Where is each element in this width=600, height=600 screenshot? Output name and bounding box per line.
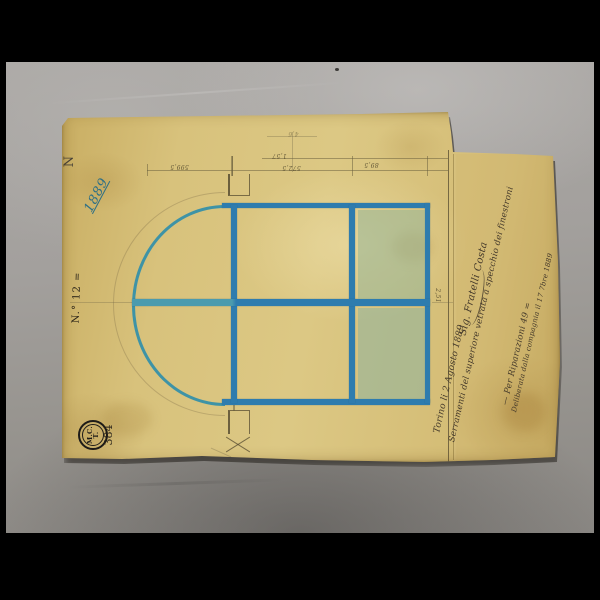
dim-label-small: 4,6 xyxy=(288,130,298,137)
frame-top-rail xyxy=(222,203,430,208)
sheet-number-label: N.° 12 = xyxy=(70,268,83,326)
backdrop-wrinkle xyxy=(66,478,286,489)
bottom-black-bar xyxy=(0,533,600,600)
year-note: 1889 xyxy=(81,175,112,215)
jamb-profile-bottom xyxy=(228,410,250,434)
dim-extension-line-right xyxy=(448,150,449,462)
glass-pane-upper xyxy=(358,210,425,299)
dim-label-overall: 1,57 xyxy=(272,152,287,159)
dimension-line-upper xyxy=(262,158,448,159)
frame-bottom-rail xyxy=(222,399,430,405)
top-black-bar xyxy=(0,0,600,62)
drawing-sheet: 599,5 1,57 572,5 89,5 4,6 2,51 N 1889 N.… xyxy=(62,112,560,462)
jamb-stem-top xyxy=(231,156,233,176)
jamb-profile-top xyxy=(228,174,250,196)
glass-pane-lower xyxy=(358,308,425,399)
backdrop-wrinkle xyxy=(46,82,345,105)
dim-tick xyxy=(147,164,148,176)
backdrop-speck xyxy=(335,68,339,71)
middle-rail xyxy=(132,299,430,306)
dim-tick xyxy=(427,156,428,176)
photograph-of-drawing: 599,5 1,57 572,5 89,5 4,6 2,51 N 1889 N.… xyxy=(0,0,600,600)
dim-tick xyxy=(352,156,353,176)
dim-label-middle: 572,5 xyxy=(282,164,301,171)
jamb-stem-bottom xyxy=(233,405,235,411)
dim-label-height: 2,51 xyxy=(434,288,441,303)
corner-letter: N xyxy=(62,156,77,167)
inventory-number: 384 xyxy=(91,427,125,443)
dim-label-right: 89,5 xyxy=(364,161,379,168)
dim-label-left: 599,5 xyxy=(170,163,189,170)
